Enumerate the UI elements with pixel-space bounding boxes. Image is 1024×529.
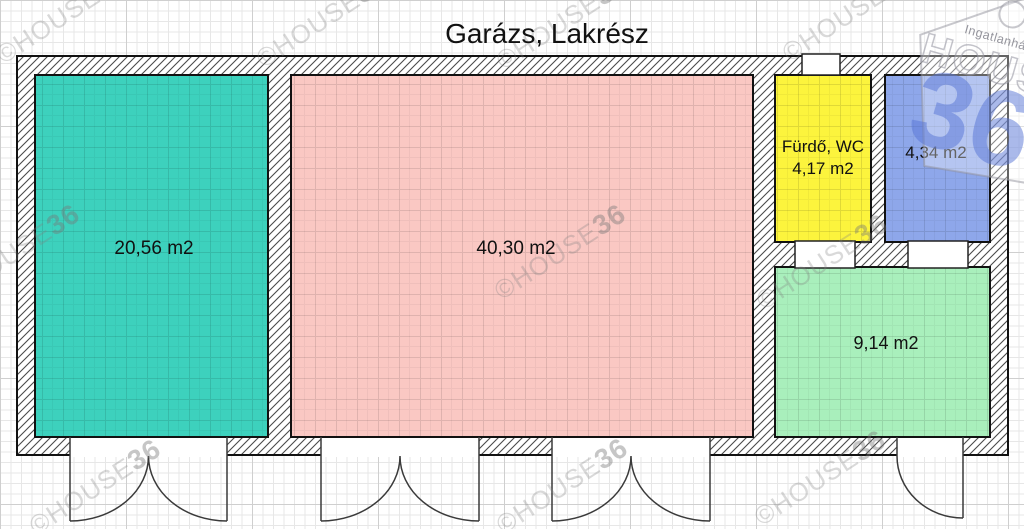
door3-arcs	[552, 456, 710, 521]
door-opening-blue	[908, 241, 968, 268]
door2-arcs	[321, 456, 479, 521]
room-blue-label: 4,34 m2	[905, 142, 966, 164]
opening-garage-door-2	[321, 436, 479, 457]
wall-top	[17, 56, 1008, 75]
door-opening-bathroom	[795, 241, 855, 268]
door4-arc	[897, 456, 963, 518]
room-green-label: 9,14 m2	[853, 332, 918, 354]
wall-left	[17, 56, 35, 455]
room-bathroom-name: Fürdő, WC	[782, 136, 864, 158]
wall-right	[990, 56, 1008, 455]
wall-inner-1	[268, 75, 291, 437]
room-bathroom-label: Fürdő, WC 4,17 m2	[782, 136, 864, 180]
page-title: Garázs, Lakrész	[445, 18, 649, 50]
opening-garage-door-1	[70, 436, 227, 457]
room-bathroom-area: 4,17 m2	[782, 158, 864, 180]
floorplan-drawing	[0, 0, 1024, 529]
window-top	[802, 54, 840, 75]
opening-entry-door	[897, 436, 963, 457]
room-left-garage-label: 20,56 m2	[114, 238, 193, 260]
door1-arcs	[70, 456, 227, 521]
wall-inner-3	[871, 75, 885, 242]
floorplan-canvas: Garázs, Lakrész 20,56 m2 40,30 m2 Fürdő,…	[0, 0, 1024, 529]
opening-garage-door-3	[552, 436, 710, 457]
room-main-label: 40,30 m2	[476, 238, 555, 260]
